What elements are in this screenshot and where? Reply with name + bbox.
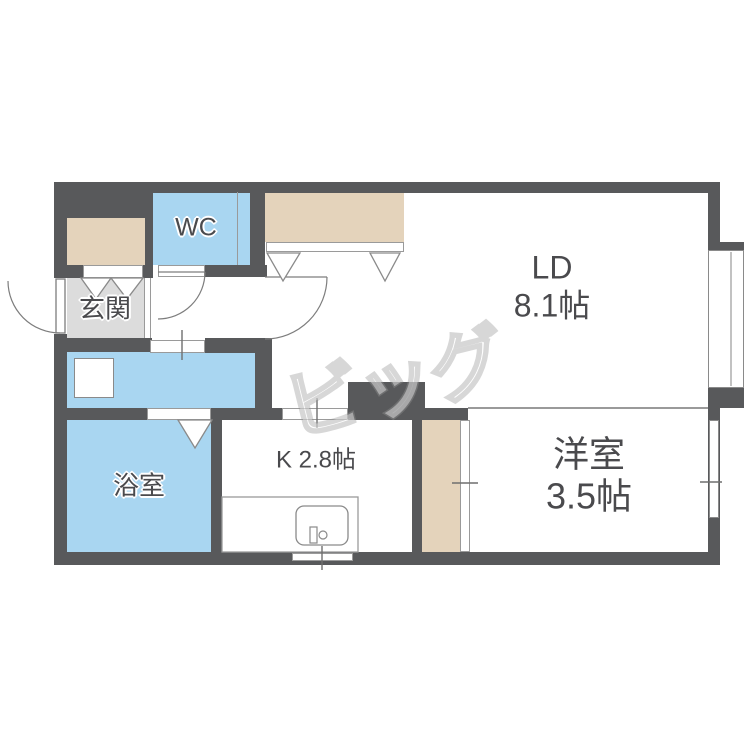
drain-icon (319, 531, 327, 539)
western-room-label: 洋室 3.5帖 (546, 434, 632, 519)
ld-closet-folding-door-icon (370, 253, 400, 281)
bathroom-door-opening (147, 408, 211, 420)
kitchen-label: K 2.8帖 (276, 440, 356, 475)
wc-door-swing-icon (158, 272, 205, 319)
genkan-step-line (150, 278, 151, 338)
entrance-door-leaf (56, 279, 65, 333)
sink-icon (296, 506, 348, 545)
western-room-closet (422, 418, 460, 552)
western-room-size: 3.5帖 (546, 476, 632, 518)
washing-machine-pan (74, 358, 114, 398)
ld-closet-folding-door-icon (267, 253, 300, 281)
ld-closet-door-track (266, 242, 404, 252)
genkan-label: 玄関 (79, 289, 131, 326)
living-dining-label: LD 8.1帖 (514, 249, 591, 325)
washroom-opening (150, 340, 205, 353)
floorplan: WC 玄関 浴室 K 2.8帖 LD 8.1帖 洋室 3.5帖 ビッグ (0, 0, 750, 750)
wc-door-opening (158, 265, 205, 277)
kitchen-window (292, 553, 353, 561)
kitchen-counter (222, 497, 358, 552)
shoe-closet-area (67, 218, 145, 265)
watermark-logo: ビッグ (272, 297, 514, 457)
faucet-icon (310, 527, 317, 543)
ld-door-swing-icon (265, 277, 327, 339)
ld-western-room-boundary (468, 407, 708, 409)
living-dining-size: 8.1帖 (514, 287, 591, 325)
wc-partition-line (237, 192, 238, 265)
wc-label: WC (175, 214, 217, 243)
living-dining-name: LD (514, 249, 591, 287)
closet-sliding-door-track (460, 420, 470, 552)
western-room-window (709, 420, 719, 518)
ld-closet-area (265, 192, 404, 242)
bathroom-label: 浴室 (113, 466, 165, 503)
western-room-name: 洋室 (546, 434, 632, 476)
genkan-step-line (144, 278, 145, 338)
ld-balcony-window (708, 250, 744, 388)
entrance-door-swing-icon (8, 281, 60, 333)
shoe-closet-door-track (83, 265, 143, 278)
